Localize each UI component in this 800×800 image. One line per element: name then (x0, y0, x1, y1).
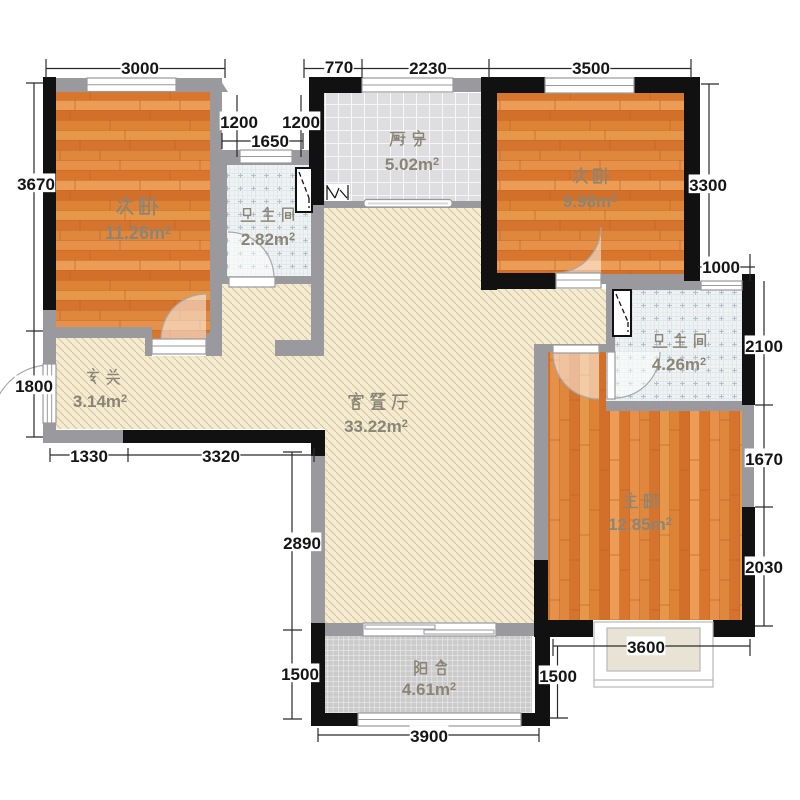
svg-text:1650: 1650 (251, 132, 289, 151)
svg-text:3320: 3320 (202, 447, 240, 466)
svg-text:3.14m2: 3.14m2 (73, 392, 127, 411)
svg-text:3300: 3300 (689, 176, 727, 195)
svg-text:2.82m2: 2.82m2 (241, 230, 295, 249)
svg-text:2030: 2030 (745, 558, 783, 577)
svg-text:770: 770 (325, 58, 353, 77)
svg-text:11.26m2: 11.26m2 (105, 223, 171, 243)
svg-text:5.02m2: 5.02m2 (385, 155, 439, 174)
svg-text:3600: 3600 (627, 638, 665, 657)
svg-text:1000: 1000 (702, 258, 740, 277)
svg-text:4.61m2: 4.61m2 (402, 680, 456, 699)
svg-text:1500: 1500 (539, 667, 577, 686)
svg-text:4.26m2: 4.26m2 (652, 355, 706, 374)
svg-text:33.22m2: 33.22m2 (344, 417, 408, 436)
svg-text:9.98m2: 9.98m2 (563, 192, 617, 211)
svg-text:1500: 1500 (281, 665, 319, 684)
svg-text:1670: 1670 (745, 450, 783, 469)
svg-text:2100: 2100 (745, 337, 783, 356)
svg-text:2890: 2890 (283, 534, 321, 553)
svg-text:1200: 1200 (282, 113, 320, 132)
svg-text:1330: 1330 (70, 447, 108, 466)
svg-text:3900: 3900 (410, 727, 448, 746)
svg-text:2230: 2230 (409, 59, 447, 78)
svg-text:3500: 3500 (572, 59, 610, 78)
svg-text:1200: 1200 (220, 113, 258, 132)
svg-text:1800: 1800 (15, 377, 53, 396)
svg-text:12.85m2: 12.85m2 (608, 515, 672, 534)
svg-text:3000: 3000 (121, 59, 159, 78)
svg-text:3670: 3670 (17, 175, 55, 194)
